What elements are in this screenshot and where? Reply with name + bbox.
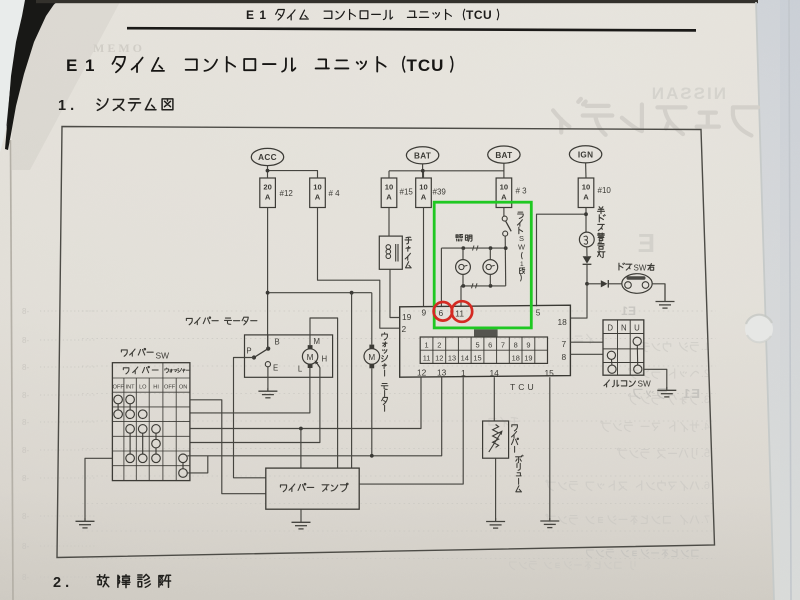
svg-text:1: 1: [425, 340, 429, 349]
svg-text:LO: LO: [139, 385, 147, 391]
svg-text:#10: #10: [598, 186, 612, 195]
svg-text:8-: 8-: [22, 391, 29, 400]
svg-text:BAT: BAT: [414, 152, 431, 161]
svg-text:13: 13: [437, 368, 447, 378]
svg-text:12: 12: [417, 367, 427, 377]
svg-text:A: A: [501, 193, 507, 202]
svg-text:#15: #15: [400, 188, 414, 197]
svg-text:TCU: TCU: [407, 56, 445, 75]
svg-text:8-: 8-: [22, 418, 29, 427]
svg-text:A: A: [315, 193, 321, 202]
svg-text:12: 12: [435, 354, 443, 363]
svg-text:4.: 4.: [701, 421, 710, 433]
svg-text:8-: 8-: [22, 336, 29, 345]
svg-text:INT: INT: [126, 385, 136, 391]
svg-text:8-: 8-: [22, 446, 29, 455]
svg-text:U: U: [634, 324, 640, 333]
svg-text:ACC: ACC: [258, 153, 277, 162]
svg-text:6: 6: [488, 340, 492, 349]
svg-text:OFF: OFF: [164, 385, 176, 391]
svg-text:6.: 6.: [701, 480, 710, 492]
svg-text:A: A: [265, 193, 271, 202]
svg-text:8-: 8-: [22, 542, 29, 551]
svg-text:BAT: BAT: [495, 151, 512, 160]
svg-text:9: 9: [422, 308, 427, 318]
svg-text:10: 10: [385, 183, 393, 192]
svg-text:1: 1: [520, 261, 524, 268]
svg-text:A: A: [421, 193, 427, 202]
svg-text:8-: 8-: [22, 307, 29, 316]
svg-text:TCU: TCU: [510, 382, 537, 392]
svg-text:19: 19: [402, 312, 412, 322]
svg-text:A: A: [583, 193, 589, 202]
svg-text:# 3: # 3: [516, 187, 528, 196]
svg-text:SW: SW: [638, 380, 651, 389]
svg-text:#12: #12: [280, 189, 294, 198]
svg-text:E: E: [273, 364, 278, 373]
svg-text:H: H: [322, 355, 328, 364]
svg-text:1: 1: [461, 368, 466, 378]
svg-text:6: 6: [439, 308, 444, 318]
svg-text:IGN: IGN: [578, 151, 593, 160]
svg-text:13: 13: [448, 354, 456, 363]
svg-text:TCU: TCU: [466, 8, 492, 22]
svg-text:10: 10: [419, 183, 427, 192]
svg-text:HI: HI: [153, 385, 159, 391]
svg-text:M: M: [307, 353, 314, 362]
svg-text:2 .: 2 .: [53, 575, 69, 591]
svg-text:8: 8: [514, 340, 518, 349]
svg-text:M: M: [314, 337, 321, 346]
svg-text:# 4: # 4: [329, 189, 341, 198]
svg-text:SW: SW: [634, 264, 647, 273]
svg-text:14: 14: [490, 368, 500, 378]
svg-text:E1: E1: [682, 386, 700, 401]
svg-text:7: 7: [501, 340, 505, 349]
svg-text:5: 5: [475, 340, 479, 349]
svg-text:ON: ON: [179, 385, 187, 391]
svg-text:M E M O: M E M O: [93, 41, 142, 55]
svg-text:SW: SW: [156, 351, 170, 361]
svg-text:10: 10: [500, 183, 508, 192]
svg-text:A: A: [386, 193, 392, 202]
svg-text:2: 2: [437, 340, 441, 349]
svg-text:L: L: [298, 365, 303, 374]
svg-text:7: 7: [562, 339, 567, 349]
svg-text:P: P: [246, 347, 251, 356]
svg-text:10: 10: [313, 183, 321, 192]
svg-text:1 .: 1 .: [58, 98, 74, 114]
svg-text:5: 5: [536, 307, 541, 317]
svg-text:8-: 8-: [22, 474, 29, 483]
svg-text:8-: 8-: [22, 573, 29, 582]
svg-text:10: 10: [582, 183, 590, 192]
svg-text:19: 19: [524, 354, 532, 363]
svg-text:11: 11: [455, 309, 464, 319]
svg-text:B: B: [275, 338, 280, 347]
svg-text:NISSAN: NISSAN: [650, 84, 726, 103]
svg-text:W: W: [518, 243, 526, 252]
svg-text:E1: E1: [621, 304, 636, 318]
svg-text:2: 2: [402, 324, 407, 334]
svg-text:D: D: [607, 324, 613, 333]
svg-text:15: 15: [473, 354, 481, 363]
svg-text:#39: #39: [433, 188, 447, 197]
svg-text:18: 18: [558, 317, 568, 327]
svg-text:N: N: [621, 324, 627, 333]
svg-text:7.: 7.: [701, 514, 710, 526]
svg-text:M: M: [368, 353, 375, 362]
svg-text:20: 20: [263, 183, 271, 192]
svg-text:3.: 3.: [701, 394, 710, 406]
svg-text:E 1: E 1: [66, 56, 96, 75]
svg-text:15: 15: [545, 368, 555, 378]
svg-text:8-: 8-: [22, 363, 29, 372]
svg-text:E: E: [638, 228, 655, 258]
svg-text:8-: 8-: [22, 512, 29, 521]
svg-text:11: 11: [423, 354, 431, 363]
svg-text:5.: 5.: [701, 448, 710, 460]
svg-text:9: 9: [526, 340, 530, 349]
svg-text:E 1: E 1: [246, 8, 267, 22]
svg-text:14: 14: [461, 354, 469, 363]
svg-text:18: 18: [512, 354, 520, 363]
svg-text:8: 8: [562, 352, 567, 362]
svg-text:OFF: OFF: [113, 385, 125, 391]
